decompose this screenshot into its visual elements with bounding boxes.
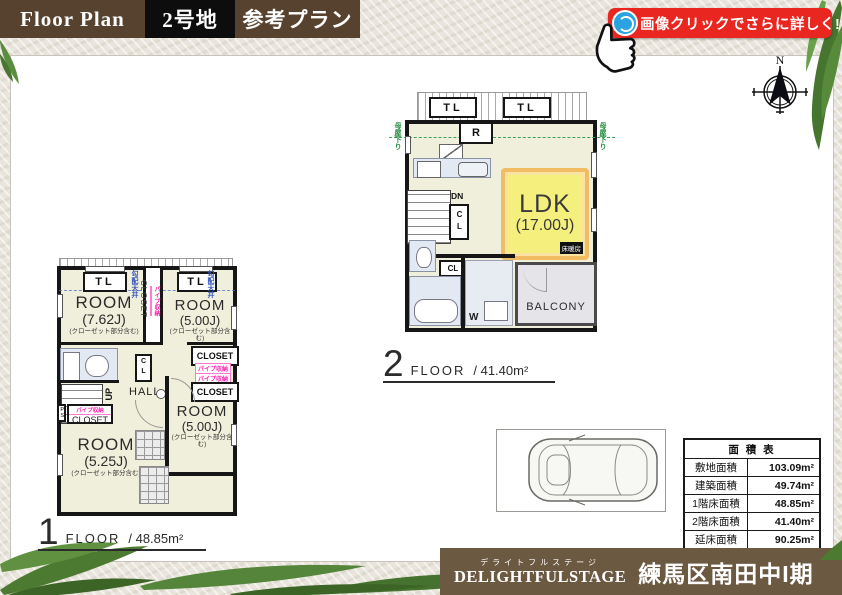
floor1-area-value: / 48.85m²: [128, 531, 183, 546]
floor1-area-label: 1 FLOOR / 48.85m²: [38, 516, 206, 551]
row-value: 103.09m²: [748, 459, 819, 476]
closet-strip: CLOSET パイプ収納: [143, 268, 163, 344]
floor-word: FLOOR: [66, 531, 121, 546]
floor-heating-tag: 床暖房: [560, 242, 584, 254]
room-500-mid-label: ROOM (5.00J) (クローゼット部分含む): [171, 404, 233, 449]
table-row: 建築面積 49.74m²: [685, 477, 819, 495]
tl-label: TL: [187, 276, 206, 288]
click-detail-label: 画像クリックでさらに詳しく!: [640, 13, 840, 34]
tl-label: TL: [95, 276, 114, 288]
bathroom: [409, 276, 461, 326]
balcony-label: BALCONY: [526, 301, 586, 313]
floor2-number: 2: [383, 348, 404, 379]
ldk-name: LDK: [519, 192, 571, 217]
porch-tiles: [139, 466, 169, 504]
header-plan-type-segment: 参考プラン: [235, 0, 360, 38]
pipe-storage-label: パイプ収納: [150, 286, 159, 316]
floor2-eaves-note-left: 母屋下り: [394, 122, 401, 150]
floor2-refrigerator-space: R: [459, 122, 493, 144]
room-note: (クローゼット部分含む): [63, 329, 145, 336]
wall: [165, 376, 169, 476]
row-label: 1階床面積: [685, 495, 748, 512]
pipe-storage-label: パイプ収納: [69, 406, 111, 415]
row-label: 建築面積: [685, 477, 748, 494]
row-label: 敷地面積: [685, 459, 748, 476]
sink-icon: [458, 162, 488, 177]
room-note: (クローゼット部分含む): [171, 435, 233, 449]
floor2-area-label: 2 FLOOR / 41.40m²: [383, 348, 555, 383]
stove-icon: [417, 161, 441, 178]
stairs-down-label: DN: [451, 191, 463, 201]
wall: [165, 472, 237, 476]
entry-tiles: [135, 430, 165, 460]
lot-label: 2号地: [162, 4, 218, 34]
closet-abbr-label: CL: [448, 264, 459, 273]
washer-icon: [484, 301, 508, 321]
row-value: 41.40m²: [748, 513, 819, 530]
kitchen-counter: [413, 158, 491, 178]
closet-abbr-label: CL: [140, 358, 147, 378]
room-name: ROOM: [63, 294, 145, 312]
brand-block: デライトフルステージ DELIGHTFULSTAGE: [454, 557, 626, 585]
floor2-plan: TL TL 母屋下り 母屋下り R DN CL LDK (17.00J) 床暖房…: [403, 90, 601, 342]
wall: [57, 342, 163, 345]
closet-label: CLOSET: [197, 387, 234, 397]
table-row: 敷地面積 103.09m²: [685, 459, 819, 477]
ldk-size: (17.00J): [516, 217, 575, 235]
footer-brand-bar: デライトフルステージ DELIGHTFULSTAGE 練馬区南田中I期: [440, 548, 842, 595]
header-title-segment: Floor Plan: [0, 0, 145, 38]
plan-type-label: 参考プラン: [243, 4, 353, 34]
sloped-ceiling-note: 勾配天井: [207, 270, 214, 298]
tl-label: TL: [443, 102, 462, 114]
room-name: ROOM: [171, 404, 233, 420]
room-500-top-label: ROOM (5.00J) (クローゼット部分含む): [167, 298, 233, 343]
washroom: [60, 348, 118, 382]
room-note: (クローゼット部分含む): [61, 471, 151, 478]
ps-label: PS: [59, 407, 65, 419]
table-row: 延床面積 90.25m²: [685, 531, 819, 548]
row-value: 49.74m²: [748, 477, 819, 494]
table-row: 1階床面積 48.85m²: [685, 495, 819, 513]
page-header: Floor Plan 2号地 参考プラン: [0, 0, 360, 38]
washer-label: W: [469, 312, 478, 323]
bathtub-icon: [414, 299, 458, 323]
toilet-room: [409, 240, 436, 272]
area-table-title: 面 積 表: [685, 440, 819, 459]
svg-text:N: N: [776, 53, 785, 67]
wall: [57, 380, 119, 383]
floor2-eaves-note-right: 母屋下り: [599, 122, 606, 150]
wall: [187, 342, 237, 345]
brand-name: DELIGHTFULSTAGE: [454, 568, 626, 585]
window: [405, 136, 411, 154]
compass-north-icon: N: [750, 52, 810, 116]
pipe-space: PS: [57, 404, 66, 422]
floor2-closet-upper: CL: [449, 204, 469, 240]
project-name: 練馬区南田中I期: [638, 555, 813, 589]
room-size: (7.62J): [63, 312, 145, 327]
floor2-toplight-right: TL: [503, 97, 551, 118]
floor2-ridge-line: [389, 137, 615, 138]
ldk-room: LDK (17.00J) 床暖房: [501, 168, 589, 260]
room-size: (5.00J): [167, 314, 233, 328]
floor2-stairs: [407, 190, 451, 244]
floor2-area-value: / 41.40m²: [473, 363, 528, 378]
refrigerator-label: R: [472, 127, 480, 139]
floor1-number: 1: [38, 516, 59, 547]
closet-box-2: CLOSET: [191, 382, 239, 402]
room4-closet: パイプ収納 CLOSET: [67, 404, 113, 424]
closet-label: CLOSET: [197, 351, 234, 361]
row-value: 48.85m²: [748, 495, 819, 512]
click-detail-badge[interactable]: 画像クリックでさらに詳しく!: [608, 8, 832, 38]
closet-strip-label: CLOSET: [139, 280, 148, 318]
room-name: ROOM: [167, 298, 233, 314]
floor1-plan: TL TL 勾配天井 勾配天井 ROOM (7.62J) (クローゼット部分含む…: [55, 258, 241, 520]
toilet-icon: [416, 247, 432, 268]
floor2-toplight-left: TL: [429, 97, 477, 118]
row-label: 2階床面積: [685, 513, 748, 530]
closet-label: CLOSET: [69, 415, 111, 425]
laundry-room: W: [465, 260, 513, 326]
room-size: (5.00J): [171, 420, 233, 434]
window: [591, 152, 597, 178]
row-label: 延床面積: [685, 531, 748, 548]
tl-label: TL: [517, 102, 536, 114]
room-762-label: ROOM (7.62J) (クローゼット部分含む): [63, 294, 145, 335]
window: [591, 208, 597, 232]
floor-word: FLOOR: [411, 363, 466, 378]
car-top-view: [525, 433, 661, 508]
room-note: (クローゼット部分含む): [167, 329, 233, 343]
area-table: 面 積 表 敷地面積 103.09m² 建築面積 49.74m² 1階床面積 4…: [683, 438, 821, 550]
closet-abbr-label: CL: [455, 210, 463, 234]
stairs-up-label: UP: [104, 388, 114, 401]
page-title: Floor Plan: [20, 7, 125, 32]
header-lot-segment: 2号地: [145, 0, 235, 38]
toilet-icon: [85, 355, 109, 377]
table-row: 2階床面積 41.40m²: [685, 513, 819, 531]
hall-closet: CL: [135, 354, 152, 382]
vanity-icon: [63, 352, 80, 381]
floor1-toplight-left: TL: [83, 272, 127, 292]
row-value: 90.25m²: [748, 531, 819, 548]
